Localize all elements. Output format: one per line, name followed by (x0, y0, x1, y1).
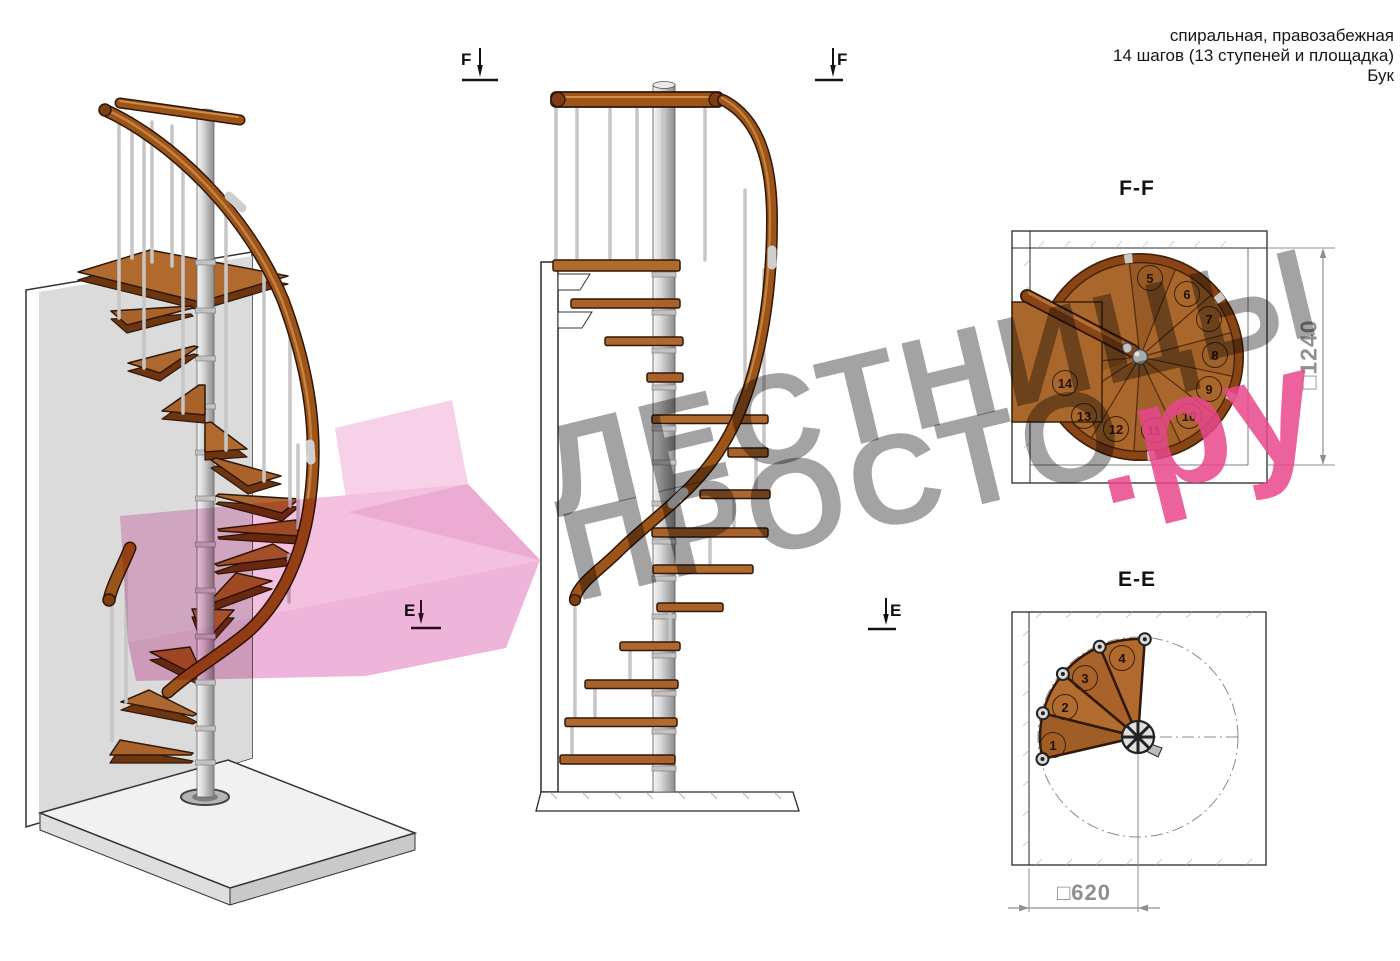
step-number-badge: 3 (1072, 665, 1098, 691)
section-label: E (404, 601, 415, 620)
section-marker-f-left: F (450, 40, 510, 90)
section-label: F (837, 50, 847, 69)
section-marker-f-right: F (805, 40, 865, 90)
section-marker-e-left: E (395, 590, 455, 640)
ground-slab (536, 792, 799, 811)
wall (26, 252, 252, 827)
plan-ff-title: F-F (1092, 177, 1182, 201)
perspective-view (10, 60, 480, 920)
step-number-badge: 1 (1040, 732, 1066, 758)
dimension-620-label: □620 (1034, 880, 1134, 906)
step-number-badge: 2 (1052, 694, 1078, 720)
spec-text-block: спиральная, правозабежная 14 шагов (13 с… (1113, 26, 1394, 86)
step-number-badge: 4 (1109, 645, 1135, 671)
section-arrow-icon (411, 600, 441, 628)
spec-material-line: Бук (1113, 66, 1394, 86)
section-label: F (461, 50, 471, 69)
dimension-value: 620 (1071, 880, 1111, 905)
section-marker-e-right: E (858, 590, 918, 640)
spec-type-line: спиральная, правозабежная (1113, 26, 1394, 46)
section-label: E (890, 601, 901, 620)
plan-view-ee (990, 590, 1350, 930)
plan-ee-title: E-E (1092, 568, 1182, 592)
spec-steps-line: 14 шагов (13 ступеней и площадка) (1113, 46, 1394, 66)
square-symbol: □ (1057, 880, 1071, 905)
